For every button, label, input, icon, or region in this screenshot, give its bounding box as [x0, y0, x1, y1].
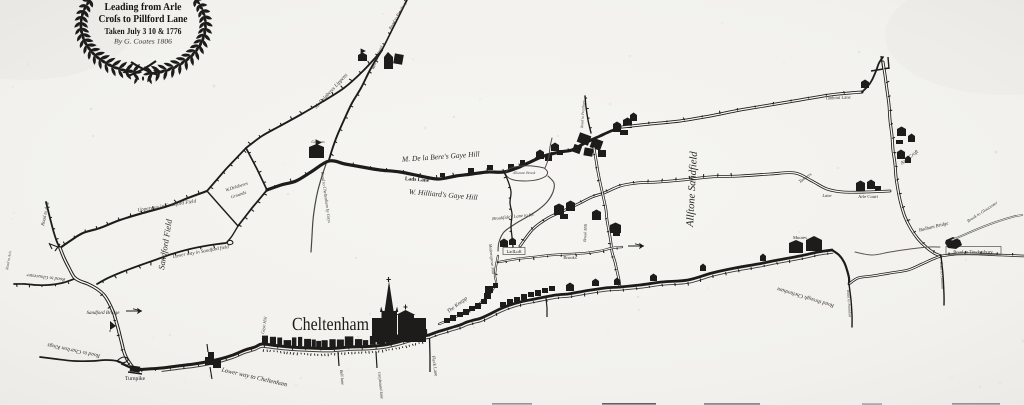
svg-text:Croſs to Pillford Lane: Croſs to Pillford Lane: [99, 14, 188, 25]
svg-text:Gallows: Gallows: [311, 139, 325, 144]
svg-text:By G. Coates 1806: By G. Coates 1806: [114, 38, 173, 46]
svg-text:Cheltenham: Cheltenham: [292, 315, 370, 335]
svg-text:LadLoft: LadLoft: [506, 249, 522, 254]
svg-text:Tanhout Lane: Tanhout Lane: [825, 95, 850, 101]
svg-text:Leading from Arle: Leading from Arle: [105, 2, 182, 13]
svg-text:Sandford Bridge: Sandford Bridge: [86, 310, 120, 316]
svg-text:Allstone Brook: Allstone Brook: [512, 171, 536, 175]
svg-text:Brooks: Brooks: [563, 255, 576, 260]
svg-text:Taken July 3 10 & 1776: Taken July 3 10 & 1776: [105, 26, 182, 36]
svg-text:Lane: Lane: [821, 193, 831, 198]
svg-text:Arle Court: Arle Court: [858, 194, 878, 199]
svg-text:Moores: Moores: [793, 235, 807, 240]
svg-text:Turnpike: Turnpike: [125, 376, 146, 382]
svg-text:Brook Mill: Brook Mill: [582, 223, 588, 242]
